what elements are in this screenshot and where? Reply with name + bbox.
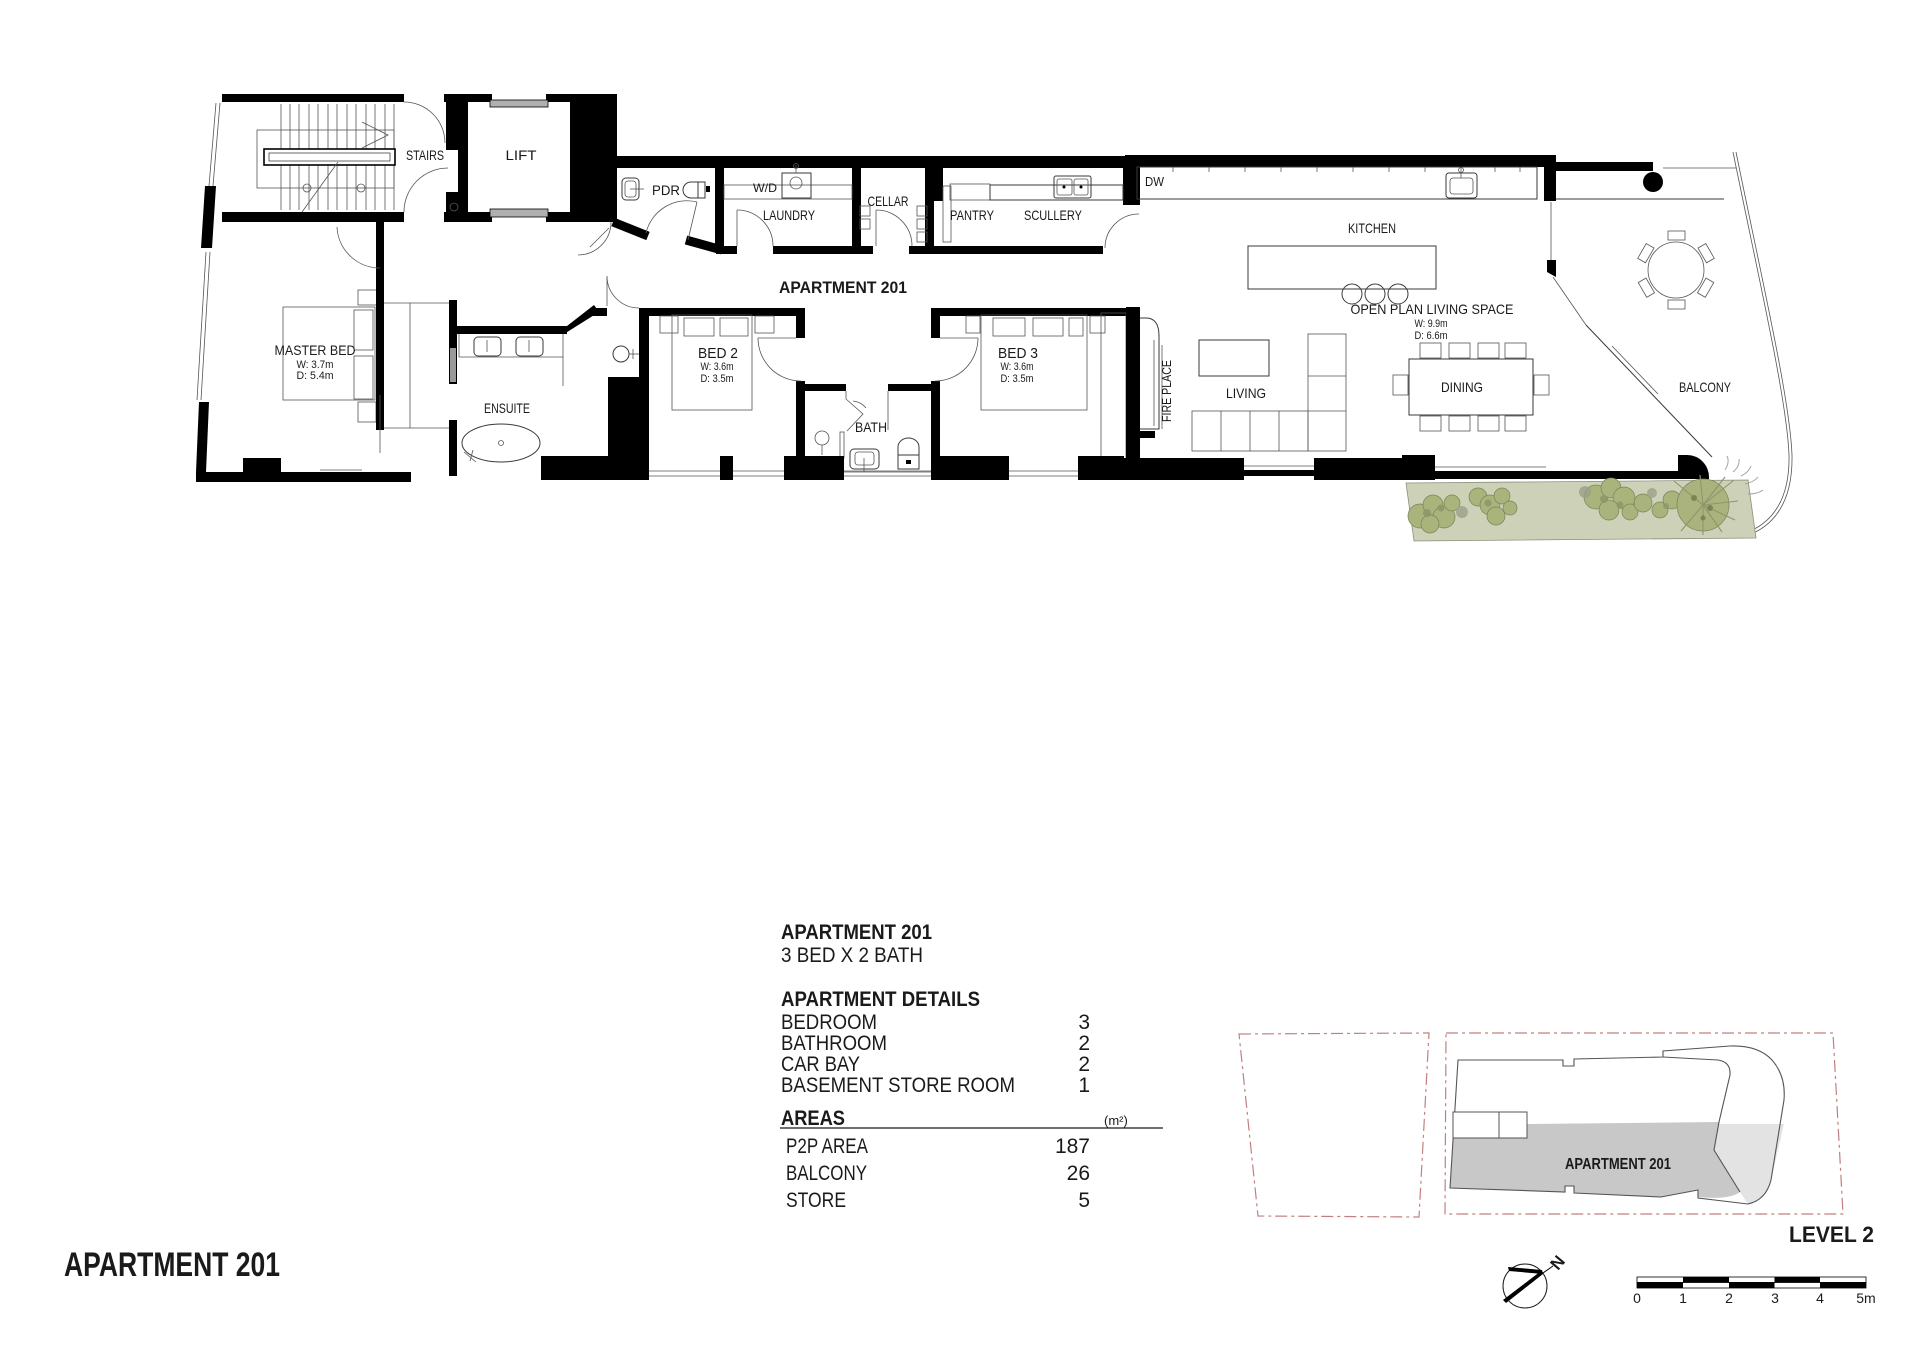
svg-text:AREAS: AREAS [781, 1107, 845, 1130]
svg-text:STORE: STORE [786, 1189, 846, 1212]
svg-text:D: 3.5m: D: 3.5m [1001, 373, 1034, 385]
svg-text:3: 3 [1078, 1011, 1090, 1034]
svg-text:187: 187 [1055, 1135, 1090, 1158]
svg-text:CELLAR: CELLAR [868, 193, 909, 209]
svg-text:LIVING: LIVING [1226, 385, 1266, 401]
svg-text:1: 1 [1679, 1290, 1687, 1306]
svg-text:2: 2 [1078, 1032, 1090, 1055]
svg-text:D: 3.5m: D: 3.5m [701, 373, 734, 385]
svg-text:D: 5.4m: D: 5.4m [297, 370, 334, 382]
svg-text:1: 1 [1078, 1074, 1090, 1097]
svg-text:2: 2 [1078, 1053, 1090, 1076]
svg-text:BALCONY: BALCONY [1679, 379, 1732, 395]
svg-text:4: 4 [1816, 1290, 1824, 1306]
svg-text:0: 0 [1633, 1290, 1641, 1306]
svg-text:BED 2: BED 2 [698, 345, 738, 362]
svg-text:KITCHEN: KITCHEN [1348, 220, 1396, 236]
svg-text:2: 2 [1725, 1290, 1733, 1306]
svg-text:DW: DW [1145, 174, 1165, 189]
svg-text:APARTMENT 201: APARTMENT 201 [779, 278, 907, 297]
svg-text:PDR: PDR [652, 182, 680, 198]
svg-text:D: 6.6m: D: 6.6m [1415, 330, 1448, 342]
svg-text:SCULLERY: SCULLERY [1024, 207, 1083, 223]
svg-text:APARTMENT 201: APARTMENT 201 [64, 1246, 280, 1284]
svg-text:LEVEL 2: LEVEL 2 [1789, 1222, 1874, 1247]
svg-text:BATH: BATH [855, 419, 887, 435]
svg-text:APARTMENT DETAILS: APARTMENT DETAILS [781, 988, 980, 1011]
svg-text:LIFT: LIFT [506, 147, 537, 163]
svg-text:W: 3.6m: W: 3.6m [701, 361, 734, 373]
svg-text:W: 3.6m: W: 3.6m [1001, 361, 1034, 373]
svg-text:3: 3 [1771, 1290, 1779, 1306]
svg-text:ENSUITE: ENSUITE [484, 400, 530, 416]
svg-text:W/D: W/D [753, 181, 777, 195]
svg-text:MASTER BED: MASTER BED [275, 342, 356, 358]
svg-text:BALCONY: BALCONY [786, 1162, 867, 1185]
svg-text:5m: 5m [1856, 1290, 1875, 1306]
svg-text:W: 9.9m: W: 9.9m [1415, 318, 1448, 330]
svg-text:BASEMENT STORE ROOM: BASEMENT STORE ROOM [781, 1074, 1015, 1097]
svg-text:APARTMENT 201: APARTMENT 201 [781, 921, 932, 944]
svg-text:DINING: DINING [1441, 379, 1483, 395]
svg-text:FIRE PLACE: FIRE PLACE [1159, 360, 1174, 422]
svg-text:P2P AREA: P2P AREA [786, 1135, 868, 1158]
svg-text:BED 3: BED 3 [998, 345, 1038, 362]
svg-text:PANTRY: PANTRY [950, 207, 995, 223]
svg-text:BATHROOM: BATHROOM [781, 1032, 887, 1055]
svg-text:3 BED X 2 BATH: 3 BED X 2 BATH [781, 944, 923, 967]
svg-text:26: 26 [1067, 1162, 1090, 1185]
svg-text:CAR BAY: CAR BAY [781, 1053, 860, 1076]
svg-text:BEDROOM: BEDROOM [781, 1011, 877, 1034]
svg-text:(m²): (m²) [1104, 1113, 1128, 1128]
svg-text:STAIRS: STAIRS [406, 147, 444, 163]
svg-text:LAUNDRY: LAUNDRY [763, 207, 816, 223]
svg-text:APARTMENT 201: APARTMENT 201 [1565, 1156, 1671, 1173]
svg-text:OPEN PLAN LIVING SPACE: OPEN PLAN LIVING SPACE [1351, 301, 1514, 317]
svg-text:5: 5 [1078, 1189, 1090, 1212]
